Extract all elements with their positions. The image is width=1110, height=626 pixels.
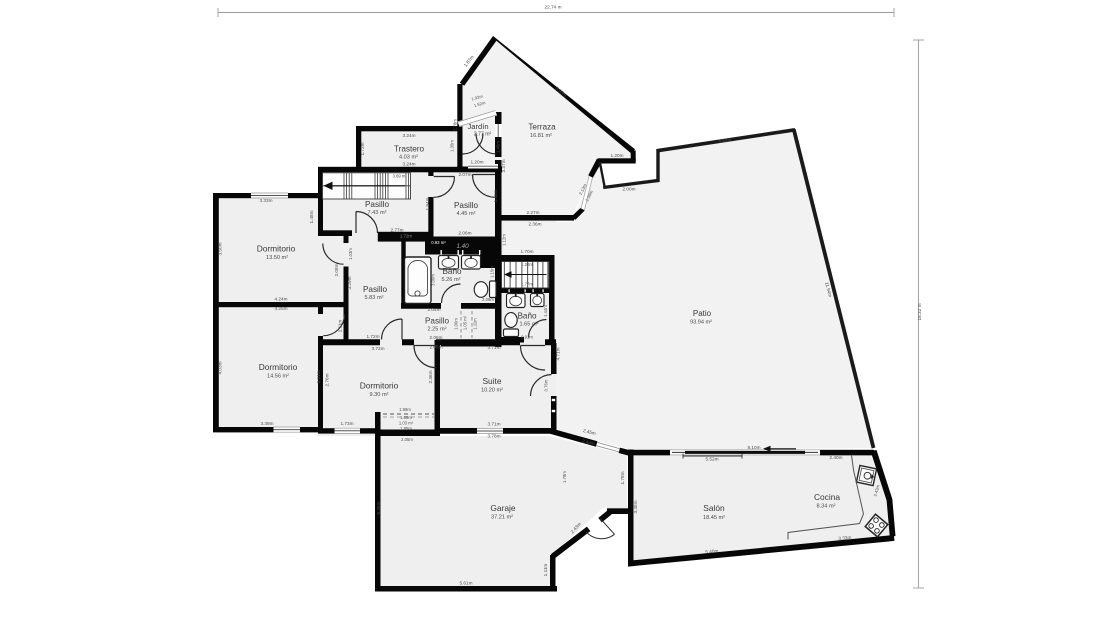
svg-text:1.05 m²: 1.05 m² <box>463 315 468 330</box>
svg-text:3.69 m: 3.69 m <box>393 174 406 179</box>
svg-text:14.56 m²: 14.56 m² <box>267 374 289 380</box>
svg-text:2.07m: 2.07m <box>458 172 471 177</box>
svg-text:3.39m: 3.39m <box>260 421 273 426</box>
svg-text:0.93 m²: 0.93 m² <box>431 240 446 245</box>
svg-text:4.03m: 4.03m <box>218 361 223 374</box>
svg-text:5.61m: 5.61m <box>459 581 472 586</box>
svg-text:2.91m: 2.91m <box>316 370 321 383</box>
svg-text:2.06m: 2.06m <box>458 231 471 236</box>
svg-text:1.85m: 1.85m <box>400 415 412 420</box>
svg-text:3.37m: 3.37m <box>501 159 506 172</box>
svg-text:13.50 m²: 13.50 m² <box>266 255 288 261</box>
svg-text:4.71m: 4.71m <box>556 347 561 360</box>
svg-text:1.73m: 1.73m <box>340 421 353 426</box>
svg-text:1.11m: 1.11m <box>338 320 343 333</box>
svg-text:2.08m: 2.08m <box>334 263 339 276</box>
svg-text:3.78m: 3.78m <box>487 434 500 439</box>
svg-text:Pasillo: Pasillo <box>363 285 388 294</box>
svg-text:2.25 m²: 2.25 m² <box>428 327 447 333</box>
svg-text:Baño: Baño <box>442 267 462 276</box>
svg-text:0.76m: 0.76m <box>544 379 549 391</box>
svg-text:2.04m: 2.04m <box>427 307 440 312</box>
svg-text:8.34 m²: 8.34 m² <box>817 504 836 510</box>
svg-text:2.05m: 2.05m <box>429 335 442 340</box>
svg-text:2.40m: 2.40m <box>829 455 842 460</box>
svg-text:8.10m: 8.10m <box>747 445 760 450</box>
svg-text:Dormitorio: Dormitorio <box>257 244 296 254</box>
svg-text:18.32 m: 18.32 m <box>917 303 922 320</box>
svg-text:2.36m: 2.36m <box>428 370 433 383</box>
svg-text:1.73m: 1.73m <box>360 142 365 155</box>
svg-text:1.12m: 1.12m <box>502 234 507 246</box>
svg-text:2.36m: 2.36m <box>528 222 541 227</box>
svg-text:1.99m: 1.99m <box>399 407 411 412</box>
svg-text:1.03m: 1.03m <box>348 248 353 260</box>
svg-text:Cocina: Cocina <box>814 492 840 502</box>
svg-text:5.26 m²: 5.26 m² <box>442 277 461 283</box>
svg-text:1.06m: 1.06m <box>454 318 459 330</box>
svg-text:1.15m: 1.15m <box>490 266 495 278</box>
svg-text:3.24m: 3.24m <box>402 133 415 138</box>
svg-text:Salón: Salón <box>703 503 725 513</box>
svg-text:5.83 m²: 5.83 m² <box>365 295 384 301</box>
svg-text:Patio: Patio <box>693 309 712 318</box>
svg-text:1.78m: 1.78m <box>562 471 567 483</box>
svg-text:Pasillo: Pasillo <box>365 200 390 209</box>
svg-text:3.50m: 3.50m <box>218 242 223 255</box>
svg-text:3.06m: 3.06m <box>431 274 436 286</box>
svg-text:Pasillo: Pasillo <box>454 201 479 210</box>
svg-text:1.11m: 1.11m <box>543 564 548 577</box>
svg-text:1.72m: 1.72m <box>400 234 413 239</box>
svg-text:18.45 m²: 18.45 m² <box>703 515 725 521</box>
svg-text:2.27m: 2.27m <box>526 210 539 215</box>
svg-text:4.24m: 4.24m <box>274 297 287 302</box>
svg-text:1.20m: 1.20m <box>470 160 483 165</box>
svg-text:4.45 m²: 4.45 m² <box>457 211 476 217</box>
svg-text:3.71m: 3.71m <box>487 345 500 350</box>
svg-text:Terraza: Terraza <box>528 123 556 132</box>
svg-text:3.29m: 3.29m <box>347 276 352 289</box>
svg-text:4.03 m²: 4.03 m² <box>399 155 418 161</box>
svg-text:2.05m: 2.05m <box>401 437 413 442</box>
svg-text:7.43 m²: 7.43 m² <box>368 210 387 216</box>
svg-text:1.11m: 1.11m <box>473 318 478 330</box>
svg-text:1.78m: 1.78m <box>620 471 625 484</box>
svg-text:1.40: 1.40 <box>456 243 469 250</box>
svg-text:Trastero: Trastero <box>394 145 425 154</box>
svg-text:Dormitorio: Dormitorio <box>259 362 298 372</box>
svg-text:2.06m: 2.06m <box>482 297 494 302</box>
svg-text:5.35m: 5.35m <box>376 501 381 514</box>
svg-text:5.52m: 5.52m <box>705 457 718 462</box>
svg-text:Dormitorio: Dormitorio <box>360 381 399 391</box>
svg-text:2.77m: 2.77m <box>390 228 403 233</box>
svg-text:Pasillo: Pasillo <box>425 317 450 326</box>
svg-text:2.00m: 2.00m <box>622 187 635 192</box>
svg-text:Jardín: Jardín <box>467 122 488 131</box>
svg-text:1.20m: 1.20m <box>610 153 623 158</box>
svg-text:3.33m: 3.33m <box>259 198 272 203</box>
svg-text:2.78m: 2.78m <box>453 119 458 131</box>
svg-text:37.21 m²: 37.21 m² <box>491 515 513 521</box>
svg-text:1.70m: 1.70m <box>520 249 533 254</box>
svg-text:1.03 m²: 1.03 m² <box>399 421 414 426</box>
svg-text:Suite: Suite <box>482 376 501 386</box>
svg-text:Baño: Baño <box>517 312 537 321</box>
svg-text:2.76m: 2.76m <box>325 373 330 386</box>
svg-text:0.91m: 0.91m <box>521 335 533 340</box>
svg-text:Garaje: Garaje <box>490 503 515 513</box>
svg-text:1.20m: 1.20m <box>521 262 533 267</box>
svg-text:3.45m: 3.45m <box>633 500 638 513</box>
svg-text:1.45m: 1.45m <box>493 189 498 202</box>
svg-text:22.74 m: 22.74 m <box>545 5 562 10</box>
svg-text:1.85m: 1.85m <box>400 426 412 431</box>
svg-text:1.77m: 1.77m <box>521 282 533 287</box>
svg-text:2.77 m²: 2.77 m² <box>474 132 492 138</box>
svg-text:1.48m: 1.48m <box>309 210 314 223</box>
svg-text:9.30 m²: 9.30 m² <box>370 392 389 398</box>
svg-text:4.25m: 4.25m <box>274 306 287 311</box>
svg-text:1.94m: 1.94m <box>425 197 430 210</box>
svg-text:1.72m: 1.72m <box>366 334 379 339</box>
svg-text:1.35m: 1.35m <box>450 140 455 152</box>
svg-text:3.72m: 3.72m <box>371 346 384 351</box>
svg-text:2.05m: 2.05m <box>429 345 442 350</box>
svg-text:3.71m: 3.71m <box>487 422 500 427</box>
svg-text:93.94 m²: 93.94 m² <box>690 320 712 326</box>
svg-text:10.20 m²: 10.20 m² <box>481 388 503 394</box>
svg-text:1.46m: 1.46m <box>496 141 501 153</box>
svg-text:3.24m: 3.24m <box>402 162 415 167</box>
svg-text:1.65 m²: 1.65 m² <box>520 322 539 328</box>
svg-text:1.44m: 1.44m <box>543 305 548 317</box>
svg-text:16.81 m²: 16.81 m² <box>530 133 552 139</box>
